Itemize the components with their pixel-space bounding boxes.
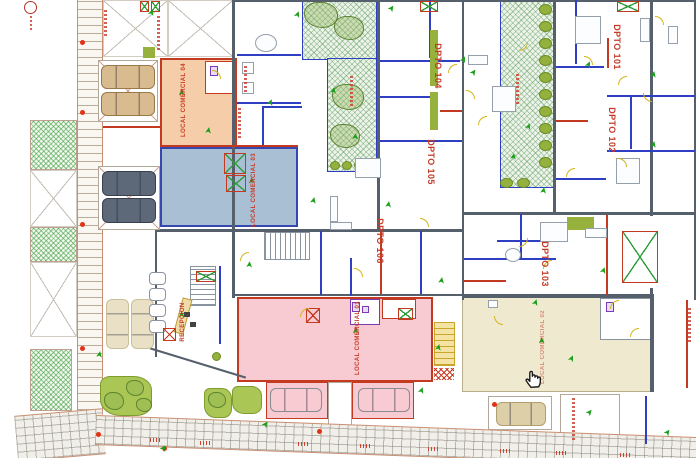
wall-segment [650, 0, 653, 216]
label-local-04: LOCAL COMERCIAL 04 [181, 63, 187, 137]
direction-arrow-icon: ➤ [386, 3, 398, 14]
shaft-x-box-icon [617, 1, 639, 12]
shrub-icon [330, 161, 340, 170]
shaft-x-box-icon [398, 308, 413, 320]
wall-segment-red [160, 145, 298, 147]
dimension-ticks [556, 451, 566, 455]
small-red-annotation [572, 396, 575, 440]
car [270, 388, 322, 412]
survey-point-dot [80, 346, 85, 351]
furniture-outline [540, 222, 568, 242]
small-red-annotation [157, 16, 160, 50]
car [106, 299, 129, 349]
furniture-outline [255, 34, 277, 52]
label-dpto-103: DPTO 103 [540, 241, 550, 287]
label-local-01: LOCAL COMERCIAL 01 [355, 301, 361, 375]
car [496, 402, 546, 426]
furniture-outline [330, 196, 338, 222]
wall-segment-blue [380, 140, 462, 142]
wall-segment-blue [320, 231, 322, 295]
tree-icon [126, 380, 144, 396]
label-dpto-101: DPTO 101 [612, 24, 622, 70]
seat-outline [149, 304, 166, 317]
wall-segment-blue [556, 66, 604, 68]
survey-point-dot [96, 432, 101, 437]
direction-arrow-icon: ➤ [351, 132, 361, 140]
wall-segment-blue [556, 178, 606, 180]
equipment-glyph [190, 322, 196, 327]
shaft-x-box-icon [420, 1, 438, 12]
door-swing-arc-icon [618, 76, 627, 85]
furniture-outline [640, 18, 650, 42]
hatch-marks [434, 368, 454, 380]
furniture-outline [488, 300, 498, 308]
wall-segment-red [606, 215, 608, 295]
survey-marker-icon [24, 1, 37, 14]
dimension-ticks [500, 449, 510, 453]
shrub-icon [539, 72, 552, 83]
direction-arrow-icon: ➤ [95, 350, 105, 359]
direction-arrow-icon: ➤ [583, 59, 594, 70]
direction-arrow-icon: ➤ [204, 126, 214, 135]
small-red-annotation [30, 16, 32, 30]
stairs [264, 232, 310, 260]
shrub-icon [517, 178, 530, 188]
roof-diagonal-area [30, 262, 77, 337]
dimension-ticks [620, 453, 630, 457]
direction-arrow-icon: ➤ [245, 260, 255, 268]
shrub-icon [539, 106, 552, 117]
hand-cursor-icon [522, 364, 548, 390]
survey-point-dot [80, 40, 85, 45]
wall-segment-blue [262, 106, 264, 148]
tree-icon [334, 16, 364, 40]
label-dpto-106: DPTO 106 [375, 218, 385, 264]
door-swing-arc-icon [420, 218, 429, 227]
shrub-icon [500, 178, 513, 188]
label-dpto-105: DPTO 105 [426, 139, 436, 185]
dimension-ticks [200, 441, 210, 445]
door-swing-arc-icon [448, 64, 457, 73]
shrub-icon [539, 55, 552, 66]
direction-arrow-icon: ➤ [416, 385, 427, 395]
wall-segment [553, 0, 556, 214]
dimension-ticks [360, 444, 370, 448]
dimension-ticks [428, 447, 438, 451]
car [102, 198, 156, 223]
small-red-annotation [238, 108, 241, 138]
wall-segment-red [440, 110, 462, 112]
small-red-annotation [688, 306, 691, 342]
shaft-x-box-icon [163, 328, 176, 341]
planter-bed [30, 120, 77, 170]
tree-icon [304, 2, 338, 28]
furniture-outline [355, 158, 381, 178]
furniture-outline [575, 16, 601, 44]
tree-icon [104, 392, 124, 410]
direction-arrow-icon: ➤ [468, 67, 480, 78]
wall-segment [464, 212, 696, 215]
shaft-x-box-icon [622, 231, 658, 283]
door-swing-arc-icon [566, 168, 575, 177]
furniture-outline [468, 55, 488, 65]
wall-segment-blue [420, 231, 422, 294]
grass-patch [232, 386, 262, 414]
wall-segment-blue [350, 258, 352, 296]
survey-point-dot [80, 110, 85, 115]
shaft-x-box-icon [196, 271, 216, 282]
railing [219, 266, 221, 344]
furniture-outline [668, 26, 678, 44]
hedge-strip [143, 47, 155, 58]
shrub-icon [539, 123, 552, 134]
furniture-outline [492, 86, 516, 112]
label-local-03: LOCAL COMERCIAL 03 [251, 153, 257, 227]
door-swing-arc-icon [655, 16, 664, 25]
direction-arrow-icon: ➤ [509, 152, 519, 161]
shaft-x-box-icon [226, 175, 246, 192]
wall-segment-red [464, 280, 506, 282]
floor-plan-canvas[interactable]: DPTO 104 DPTO 101 DPTO 102 DPTO 105 DPTO… [0, 0, 696, 458]
small-red-annotation [244, 64, 247, 92]
wall-segment-blue [237, 54, 301, 56]
label-recepcion: RECEPCION [180, 302, 186, 341]
shrub-icon [539, 89, 552, 100]
car [358, 388, 410, 412]
survey-point-dot [317, 429, 322, 434]
door-swing-arc-icon [643, 93, 652, 102]
shrub-icon [539, 157, 552, 168]
shaft-x-box-icon [224, 153, 246, 174]
shrub-icon [539, 4, 552, 15]
tree-icon [208, 392, 226, 408]
door-swing-arc-icon [478, 116, 487, 125]
wall-segment [232, 294, 654, 296]
shrub-icon [539, 38, 552, 49]
plumbing-fixture-icon [362, 306, 369, 313]
wall-segment-red [103, 126, 160, 128]
furniture-outline [505, 248, 521, 262]
wall-segment-blue [380, 96, 432, 98]
wall-segment-blue [262, 106, 302, 108]
direction-arrow-icon: ➤ [329, 86, 339, 95]
wall-segment [150, 347, 246, 378]
shrub-icon [539, 21, 552, 32]
label-dpto-104: DPTO 104 [433, 43, 443, 89]
seat-outline [149, 272, 166, 285]
planter-bed [30, 349, 72, 411]
dimension-ticks [150, 438, 160, 442]
door-swing-arc-icon [519, 238, 528, 247]
shrub-icon [539, 140, 552, 151]
direction-arrow-icon: ➤ [308, 196, 319, 206]
door-swing-arc-icon [354, 268, 363, 277]
wall-segment-blue [380, 60, 460, 62]
furniture-outline [585, 228, 607, 238]
direction-arrow-icon: ➤ [437, 276, 447, 285]
wall-segment-red [607, 38, 609, 68]
shrub-icon [212, 352, 221, 361]
door-swing-arc-icon [466, 90, 475, 99]
sidewalk-corner [14, 408, 106, 458]
wall-segment [462, 0, 464, 300]
wall-segment [652, 296, 654, 392]
wall-segment-blue [645, 396, 647, 444]
wall-segment-blue [630, 97, 632, 149]
small-red-annotation [350, 76, 353, 106]
dimension-ticks [298, 442, 308, 446]
car [101, 65, 155, 89]
small-red-annotation [516, 74, 519, 104]
shrub-icon [342, 161, 352, 170]
tree-icon [136, 398, 152, 412]
planter-bed [30, 227, 77, 262]
wall-segment [232, 0, 235, 298]
roof-diagonal-area [168, 0, 233, 57]
wall-segment-red [556, 120, 588, 122]
furniture-outline [330, 222, 352, 230]
survey-point-dot [492, 402, 497, 407]
hedge-strip [430, 92, 438, 130]
car [101, 92, 155, 116]
wall-segment-blue [607, 150, 695, 152]
wall-segment [377, 0, 380, 231]
roof-diagonal-area [30, 170, 77, 227]
car [102, 171, 156, 196]
direction-arrow-icon: ➤ [539, 186, 549, 195]
seat-outline [149, 288, 166, 301]
small-red-annotation [104, 8, 107, 36]
survey-point-dot [80, 222, 85, 227]
direction-arrow-icon: ➤ [384, 200, 394, 209]
label-dpto-102: DPTO 102 [607, 107, 617, 153]
